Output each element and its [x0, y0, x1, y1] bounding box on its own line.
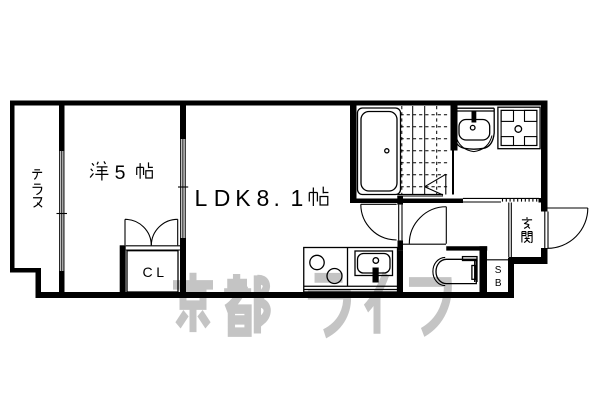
- svg-text:L: L: [156, 264, 164, 280]
- svg-text:D: D: [214, 185, 231, 211]
- svg-text:B: B: [495, 278, 502, 289]
- svg-text:K: K: [235, 185, 251, 211]
- svg-text:.: .: [274, 185, 280, 211]
- svg-text:L: L: [195, 185, 208, 211]
- svg-text:S: S: [495, 265, 502, 276]
- svg-text:C: C: [143, 264, 153, 280]
- svg-text:5: 5: [115, 162, 126, 184]
- svg-text:1: 1: [291, 185, 304, 211]
- svg-text:8: 8: [257, 185, 270, 211]
